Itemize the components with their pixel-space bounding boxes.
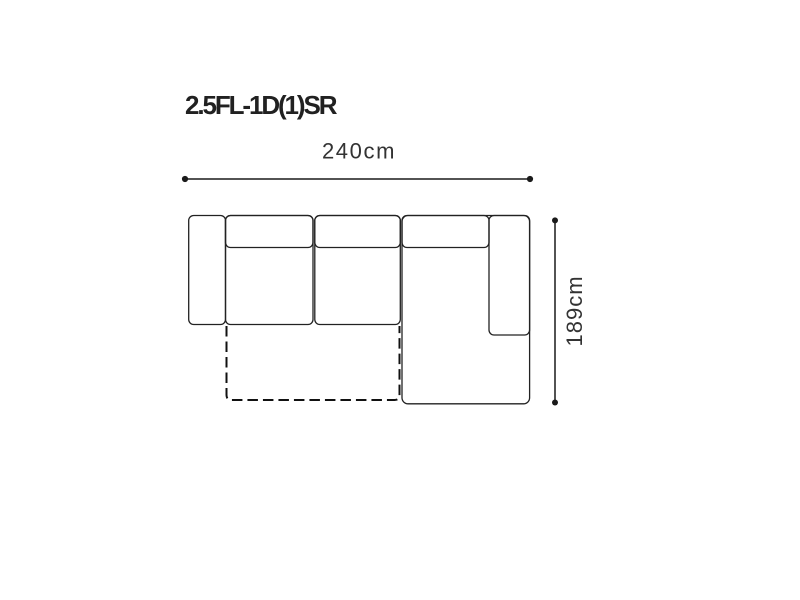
svg-text:2.5FL-1D(1)SR: 2.5FL-1D(1)SR — [185, 90, 338, 120]
svg-text:189cm: 189cm — [562, 275, 587, 346]
svg-text:240cm: 240cm — [322, 139, 396, 164]
